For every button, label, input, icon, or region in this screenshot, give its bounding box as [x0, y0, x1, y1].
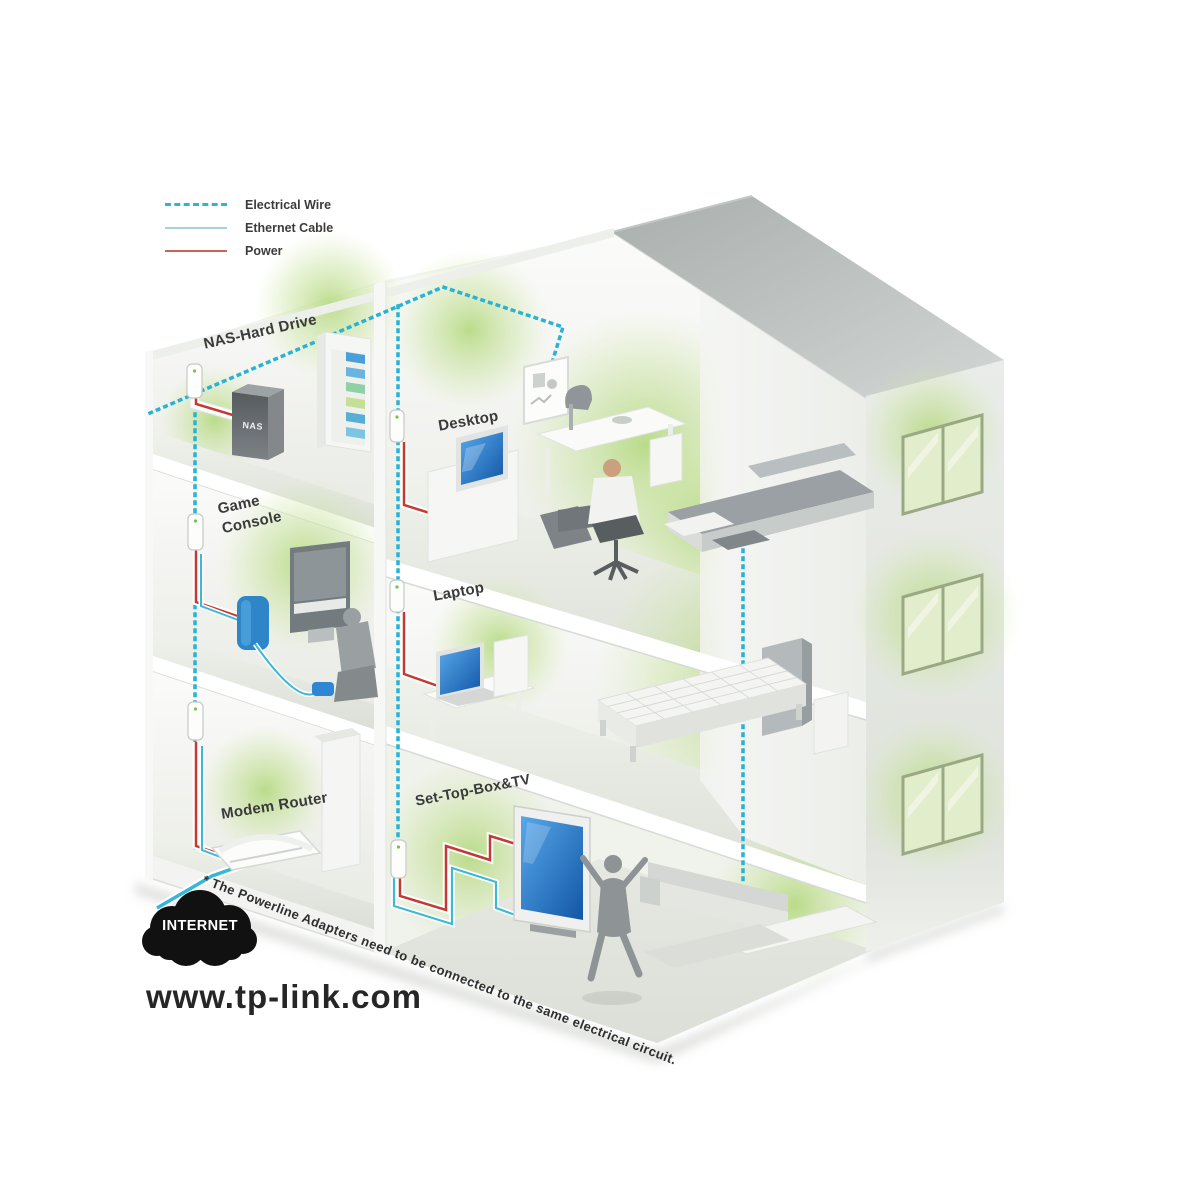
tv-set [514, 806, 590, 938]
powerline-adapter [188, 702, 203, 740]
legend-item-electrical: Electrical Wire [165, 193, 333, 216]
powerline-adapter [187, 364, 202, 398]
powerline-adapter [391, 840, 406, 878]
right-exterior-wall [850, 360, 1020, 952]
legend-label: Electrical Wire [245, 198, 331, 212]
nightstand [494, 635, 528, 697]
electrical-wire-swatch [165, 203, 227, 206]
legend-label: Ethernet Cable [245, 221, 333, 235]
legend-label: Power [245, 244, 283, 258]
nightstand [814, 692, 848, 754]
powerline-adapter [390, 580, 404, 612]
bookshelf [317, 332, 371, 452]
power-swatch [165, 250, 227, 252]
nas-device-badge: NAS [242, 420, 263, 432]
powerline-adapter [188, 514, 203, 550]
legend-item-ethernet: Ethernet Cable [165, 216, 333, 239]
house-illustration [0, 0, 1200, 1200]
legend: Electrical Wire Ethernet Cable Power [165, 193, 333, 262]
legend-item-power: Power [165, 239, 333, 262]
website-url: www.tp-link.com [146, 978, 422, 1016]
game-console-device [237, 596, 269, 650]
ethernet-cable-swatch [165, 227, 227, 229]
internet-label: INTERNET [152, 918, 248, 934]
powerline-adapter [390, 410, 404, 442]
tp-link-powerline-diagram: Electrical Wire Ethernet Cable Power NAS… [0, 0, 1200, 1200]
